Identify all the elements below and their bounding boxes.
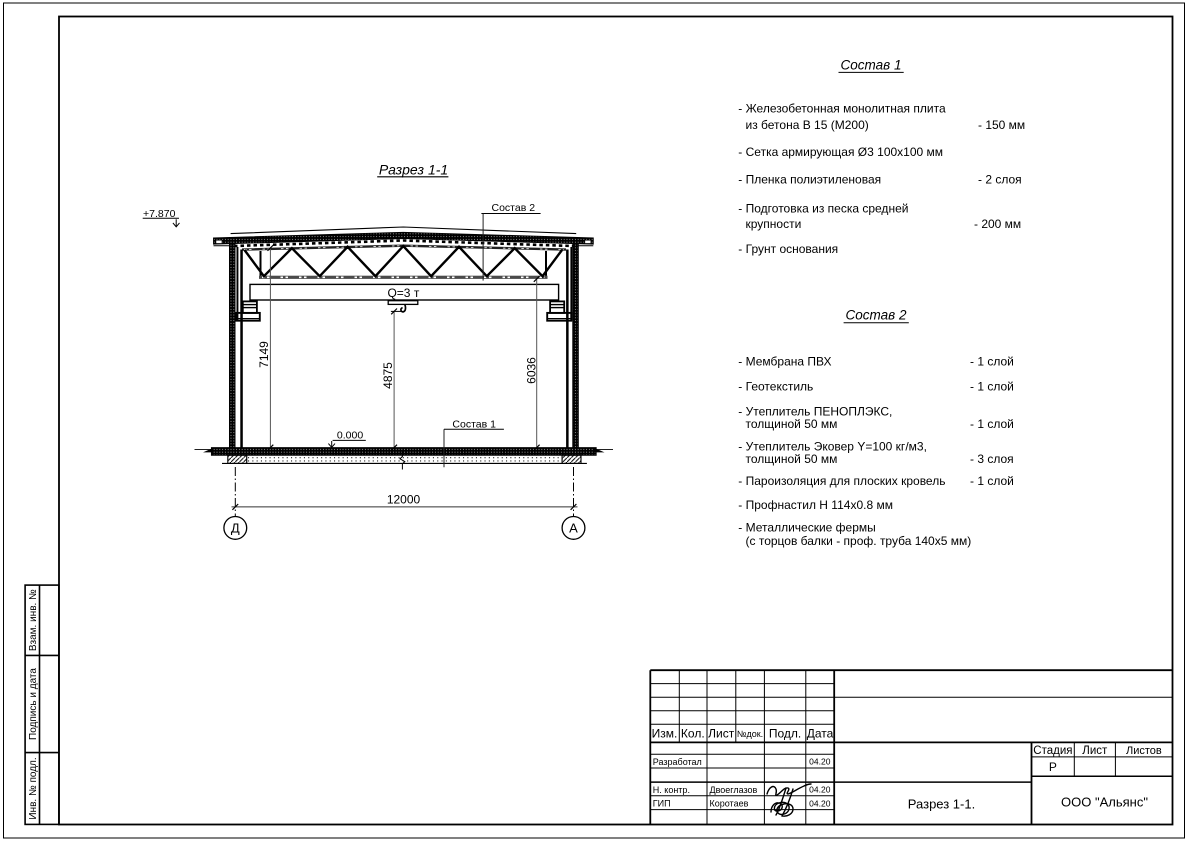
- svg-text:04.20: 04.20: [809, 785, 831, 795]
- svg-text:крупности: крупности: [746, 217, 802, 231]
- svg-text:Состав 1: Состав 1: [452, 418, 496, 430]
- svg-text:Двоеглазов: Двоеглазов: [710, 785, 758, 795]
- svg-text:- 1 слой: - 1 слой: [970, 355, 1014, 369]
- svg-text:Подпись и дата: Подпись и дата: [28, 668, 39, 740]
- svg-text:Н. контр.: Н. контр.: [653, 785, 690, 795]
- svg-text:- 1 слой: - 1 слой: [970, 379, 1014, 393]
- svg-text:Дата: Дата: [807, 727, 834, 741]
- svg-text:Стадия: Стадия: [1033, 745, 1072, 757]
- svg-text:ООО "Альянс": ООО "Альянс": [1061, 795, 1148, 810]
- svg-text:04.20: 04.20: [809, 756, 831, 766]
- svg-text:- Профнастил Н 114х0.8 мм: - Профнастил Н 114х0.8 мм: [738, 498, 893, 512]
- svg-text:- Подготовка из песка средней: - Подготовка из песка средней: [738, 201, 908, 215]
- svg-text:из бетона В 15 (М200): из бетона В 15 (М200): [746, 118, 869, 132]
- svg-text:Д: Д: [231, 520, 240, 535]
- svg-text:7149: 7149: [257, 341, 271, 368]
- svg-text:№док.: №док.: [737, 729, 763, 739]
- svg-text:толщиной 50 мм: толщиной 50 мм: [746, 452, 838, 466]
- svg-text:- Металлические фермы: - Металлические фермы: [738, 521, 875, 535]
- svg-text:Q=3 т: Q=3 т: [387, 286, 419, 300]
- svg-text:4875: 4875: [381, 362, 395, 389]
- svg-text:Изм.: Изм.: [652, 727, 678, 741]
- svg-text:А: А: [569, 520, 578, 535]
- svg-text:Кол.: Кол.: [681, 727, 705, 741]
- svg-text:04.20: 04.20: [809, 798, 831, 808]
- svg-text:Инв. № подл.: Инв. № подл.: [28, 757, 39, 819]
- svg-text:- 3 слоя: - 3 слоя: [970, 452, 1014, 466]
- svg-text:- 200 мм: - 200 мм: [974, 217, 1021, 231]
- svg-text:Листов: Листов: [1126, 745, 1162, 757]
- svg-text:- 1 слой: - 1 слой: [970, 474, 1014, 488]
- svg-text:Разработал: Разработал: [653, 757, 702, 767]
- svg-text:- Сетка армирующая Ø3 100х100: - Сетка армирующая Ø3 100х100 мм: [738, 145, 943, 159]
- svg-text:Лист: Лист: [1082, 745, 1108, 757]
- svg-text:- Геотекстиль: - Геотекстиль: [738, 379, 813, 393]
- svg-text:толщиной 50 мм: толщиной 50 мм: [746, 417, 838, 431]
- svg-text:ГИП: ГИП: [653, 799, 671, 809]
- svg-text:Разрез 1-1: Разрез 1-1: [379, 162, 448, 178]
- svg-text:- Пленка полиэтиленовая: - Пленка полиэтиленовая: [738, 173, 881, 187]
- svg-text:- 2 слоя: - 2 слоя: [978, 173, 1022, 187]
- svg-text:Коротаев: Коротаев: [710, 799, 749, 809]
- svg-text:- 1 слой: - 1 слой: [970, 417, 1014, 431]
- svg-text:Состав 2: Состав 2: [846, 308, 907, 323]
- svg-text:- Мембрана ПВХ: - Мембрана ПВХ: [738, 355, 831, 369]
- svg-text:Р: Р: [1049, 760, 1057, 774]
- svg-text:Подл.: Подл.: [769, 727, 801, 741]
- svg-text:- Железобетонная монолитная п: - Железобетонная монолитная плита: [738, 102, 946, 116]
- svg-text:Лист: Лист: [708, 727, 735, 741]
- svg-text:Взам. инв. №: Взам. инв. №: [28, 589, 39, 651]
- svg-text:Разрез 1-1.: Разрез 1-1.: [908, 797, 975, 812]
- svg-text:6036: 6036: [524, 357, 538, 384]
- svg-text:- Пароизоляция для плоских кро: - Пароизоляция для плоских кровель: [738, 474, 945, 488]
- svg-text:Состав 2: Состав 2: [492, 202, 536, 214]
- svg-text:- 150 мм: - 150 мм: [978, 118, 1025, 132]
- svg-text:(с торцов балки - проф. труба: (с торцов балки - проф. труба 140х5 мм): [746, 534, 972, 548]
- svg-text:Состав 1: Состав 1: [841, 58, 902, 73]
- svg-text:- Грунт основания: - Грунт основания: [738, 242, 838, 256]
- svg-text:12000: 12000: [387, 492, 421, 506]
